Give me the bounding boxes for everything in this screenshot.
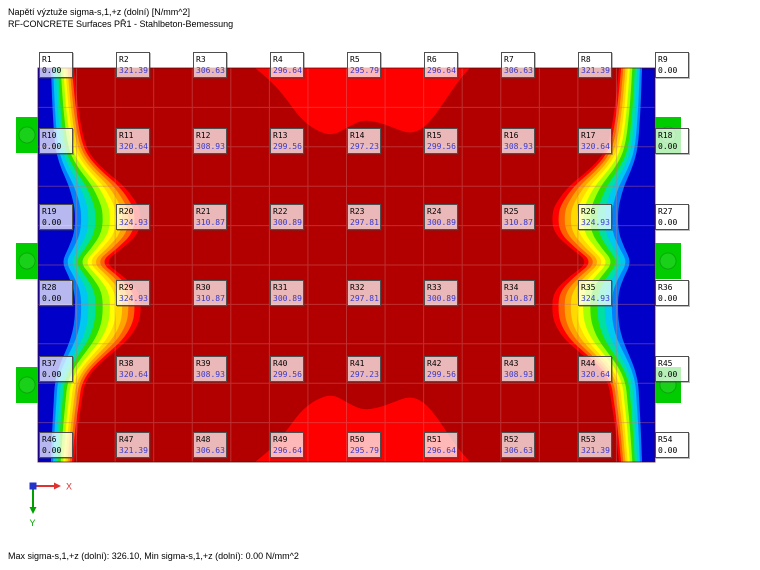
- axis-triad-icon: XY: [20, 474, 90, 534]
- result-title: Napětí výztuže sigma-s,1,+z (dolní) [N/m…: [8, 6, 190, 18]
- support-hinge-icon: [660, 253, 676, 269]
- model-canvas[interactable]: [0, 0, 760, 570]
- x-axis-label: X: [66, 482, 72, 492]
- x-axis-arrowhead-icon: [54, 483, 61, 490]
- y-axis-label: Y: [30, 518, 36, 528]
- status-bar: Max sigma-s,1,+z (dolní): 326.10, Min si…: [8, 551, 299, 561]
- axis-origin-icon: [30, 483, 37, 490]
- y-axis-arrowhead-icon: [30, 507, 37, 514]
- support-hinge-icon: [660, 377, 676, 393]
- support-hinge-icon: [19, 377, 35, 393]
- support-hinge-icon: [660, 127, 676, 143]
- support-hinge-icon: [19, 127, 35, 143]
- case-title: RF-CONCRETE Surfaces PŘ1 - Stahlbeton-Be…: [8, 18, 233, 30]
- support-hinge-icon: [19, 253, 35, 269]
